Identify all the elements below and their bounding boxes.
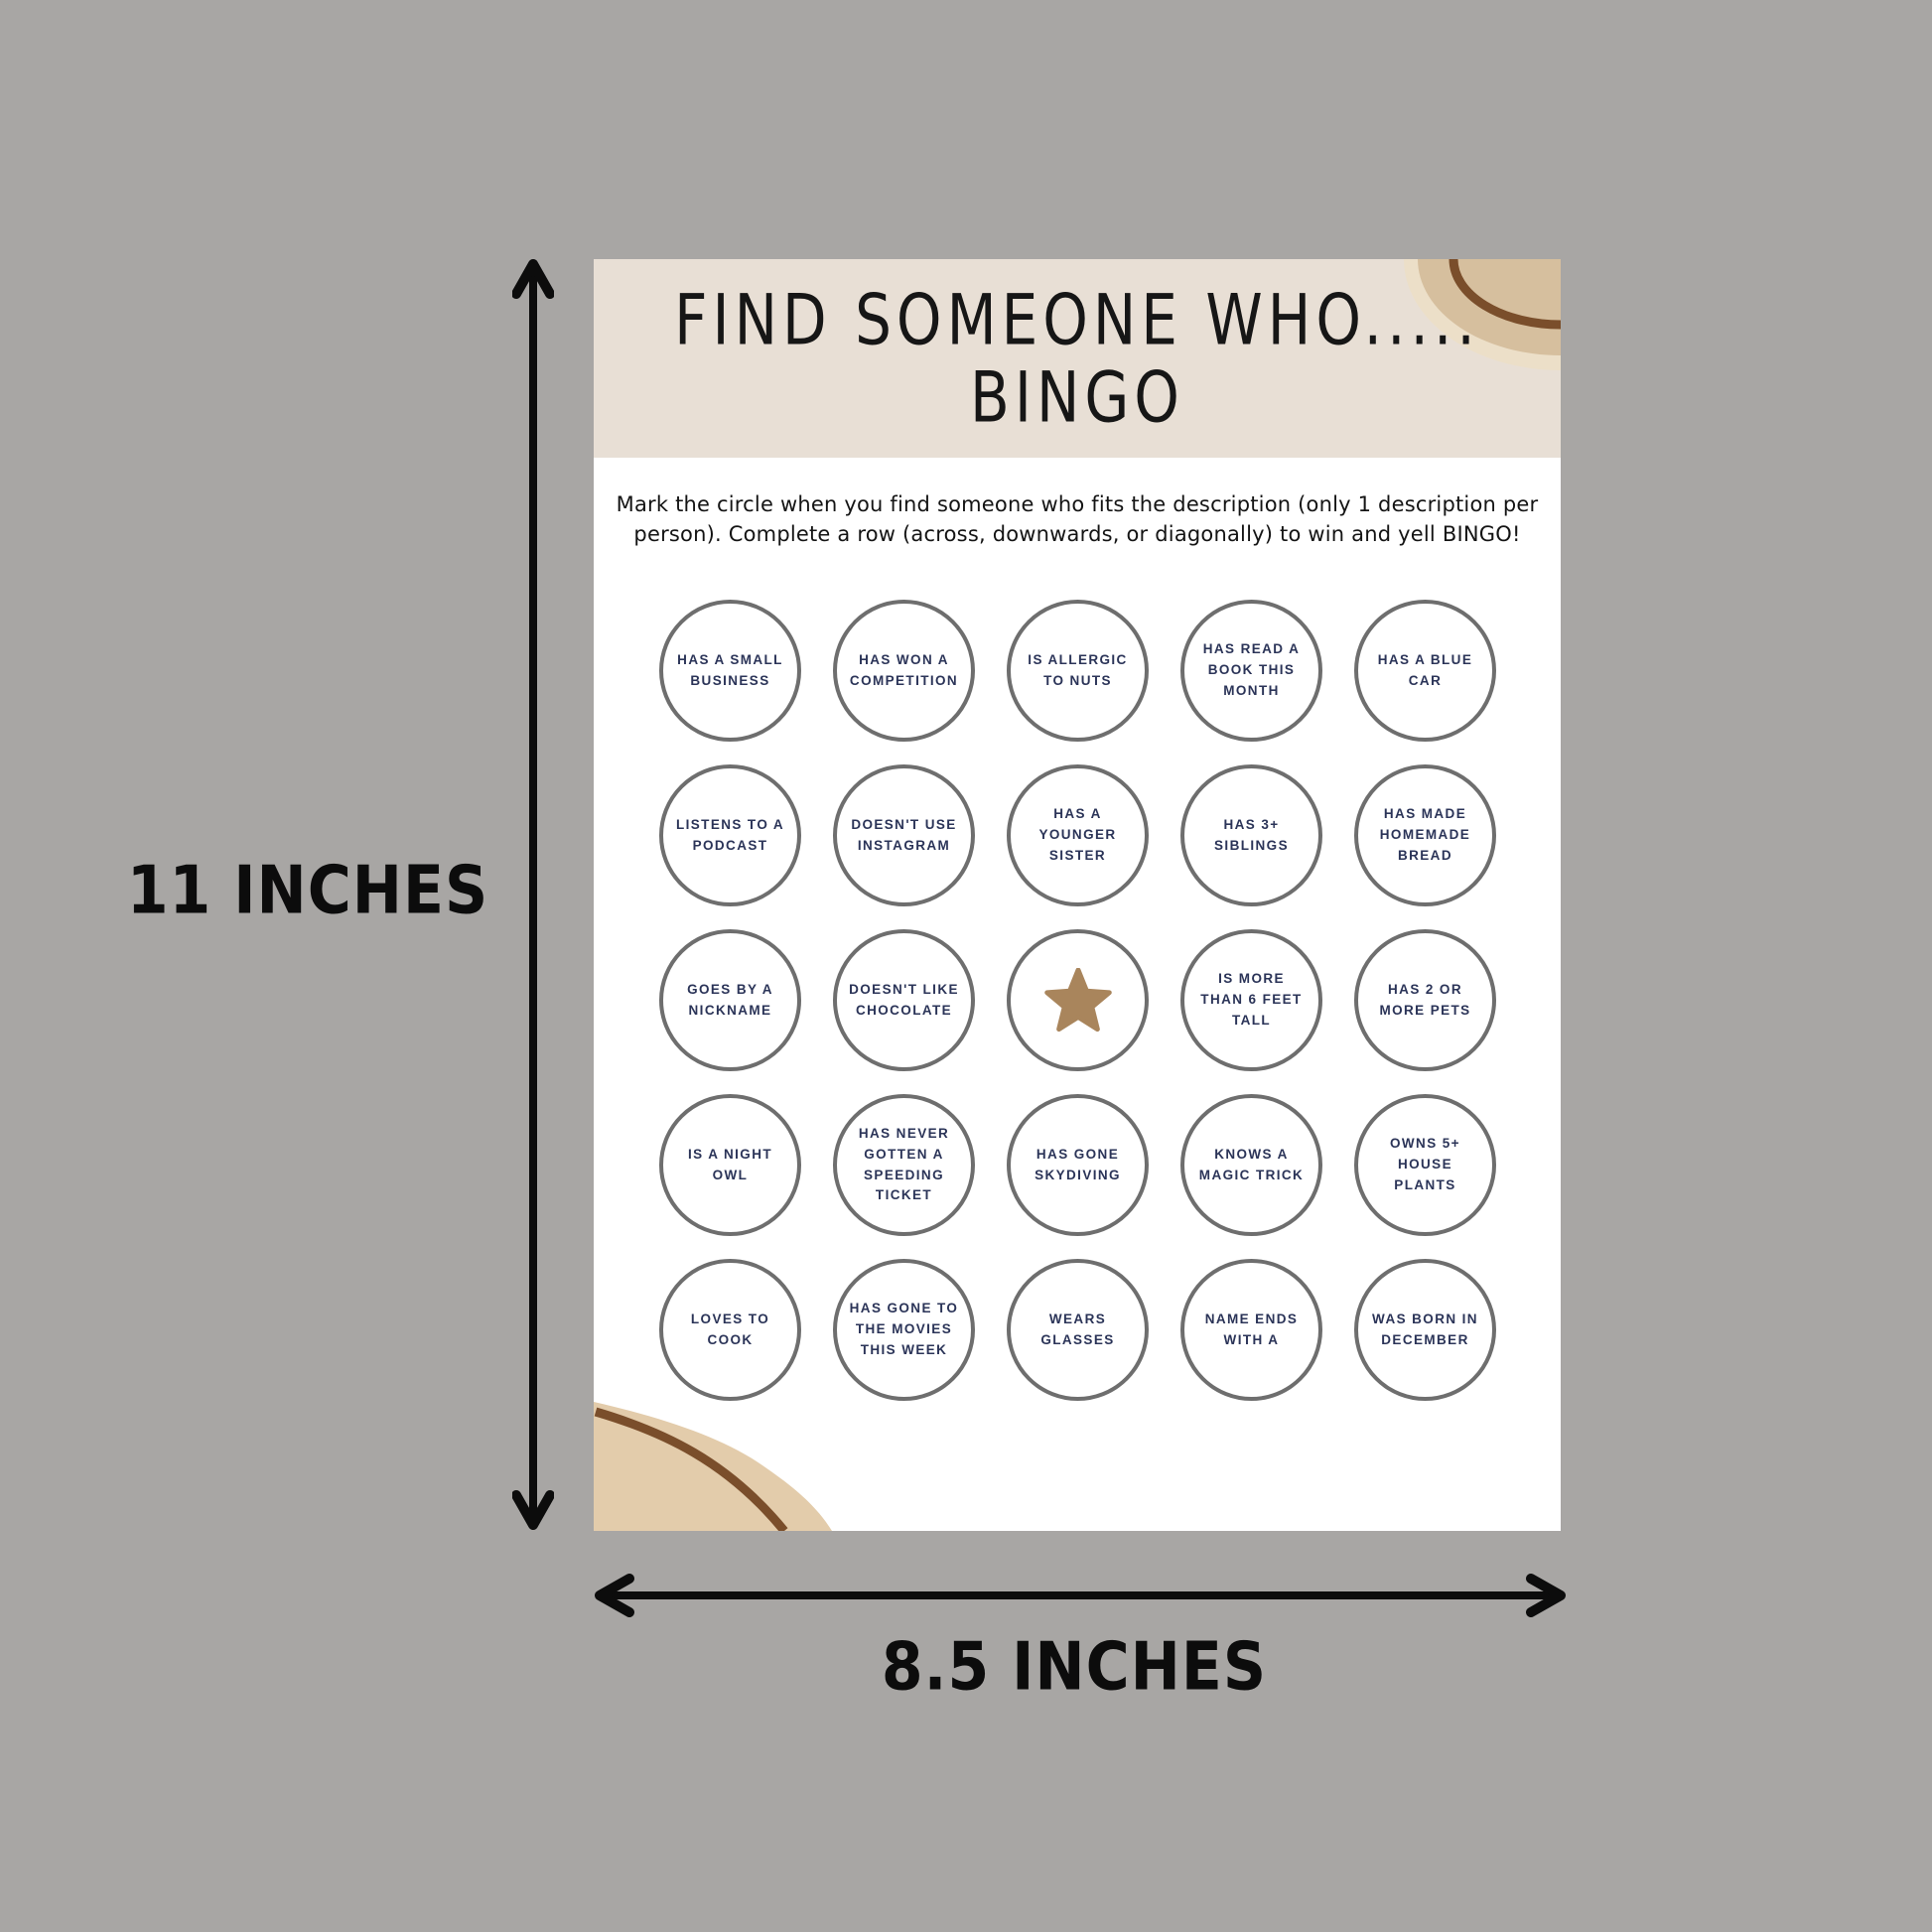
bingo-page: FIND SOMEONE WHO..... BINGO Mark the cir…: [594, 259, 1561, 1531]
height-dimension-label: 11 INCHES: [94, 852, 521, 929]
bingo-cell: WEARS GLASSES: [1007, 1259, 1149, 1401]
bingo-cell: HAS GONE SKYDIVING: [1007, 1094, 1149, 1236]
bingo-cell: HAS 3+ SIBLINGS: [1180, 764, 1322, 906]
bingo-cell: IS A NIGHT OWL: [659, 1094, 801, 1236]
bingo-cell: HAS A YOUNGER SISTER: [1007, 764, 1149, 906]
instructions-text: Mark the circle when you find someone wh…: [596, 489, 1559, 549]
mockup-scene: FIND SOMEONE WHO..... BINGO Mark the cir…: [0, 0, 1932, 1932]
bingo-grid: HAS A SMALL BUSINESS HAS WON A COMPETITI…: [659, 600, 1496, 1401]
bingo-cell: HAS NEVER GOTTEN A SPEEDING TICKET: [833, 1094, 975, 1236]
bingo-cell: HAS A SMALL BUSINESS: [659, 600, 801, 742]
bingo-cell: DOESN'T USE INSTAGRAM: [833, 764, 975, 906]
bingo-cell: HAS WON A COMPETITION: [833, 600, 975, 742]
bingo-cell: HAS MADE HOMEMADE BREAD: [1354, 764, 1496, 906]
bingo-cell: WAS BORN IN DECEMBER: [1354, 1259, 1496, 1401]
bingo-cell: IS MORE THAN 6 FEET TALL: [1180, 929, 1322, 1071]
page-title-line2: BINGO: [594, 349, 1561, 444]
bingo-cell: HAS GONE TO THE MOVIES THIS WEEK: [833, 1259, 975, 1401]
bingo-free-space-cell: [1007, 929, 1149, 1071]
bingo-cell: HAS READ A BOOK THIS MONTH: [1180, 600, 1322, 742]
header-band: FIND SOMEONE WHO..... BINGO: [594, 259, 1561, 458]
star-icon: [1044, 968, 1112, 1034]
bingo-cell: OWNS 5+ HOUSE PLANTS: [1354, 1094, 1496, 1236]
bingo-cell: DOESN'T LIKE CHOCOLATE: [833, 929, 975, 1071]
width-dimension-label: 8.5 INCHES: [861, 1628, 1288, 1706]
page-title: FIND SOMEONE WHO..... BINGO: [594, 281, 1561, 436]
bingo-cell: LOVES TO COOK: [659, 1259, 801, 1401]
bingo-cell: HAS A BLUE CAR: [1354, 600, 1496, 742]
bingo-cell: IS ALLERGIC TO NUTS: [1007, 600, 1149, 742]
bingo-cell: HAS 2 OR MORE PETS: [1354, 929, 1496, 1071]
bingo-cell: GOES BY A NICKNAME: [659, 929, 801, 1071]
bingo-cell: NAME ENDS WITH A: [1180, 1259, 1322, 1401]
horizontal-dimension-arrow: [592, 1574, 1569, 1617]
bingo-cell: KNOWS A MAGIC TRICK: [1180, 1094, 1322, 1236]
bingo-cell: LISTENS TO A PODCAST: [659, 764, 801, 906]
corner-decoration-bottom-left: [594, 1400, 834, 1531]
